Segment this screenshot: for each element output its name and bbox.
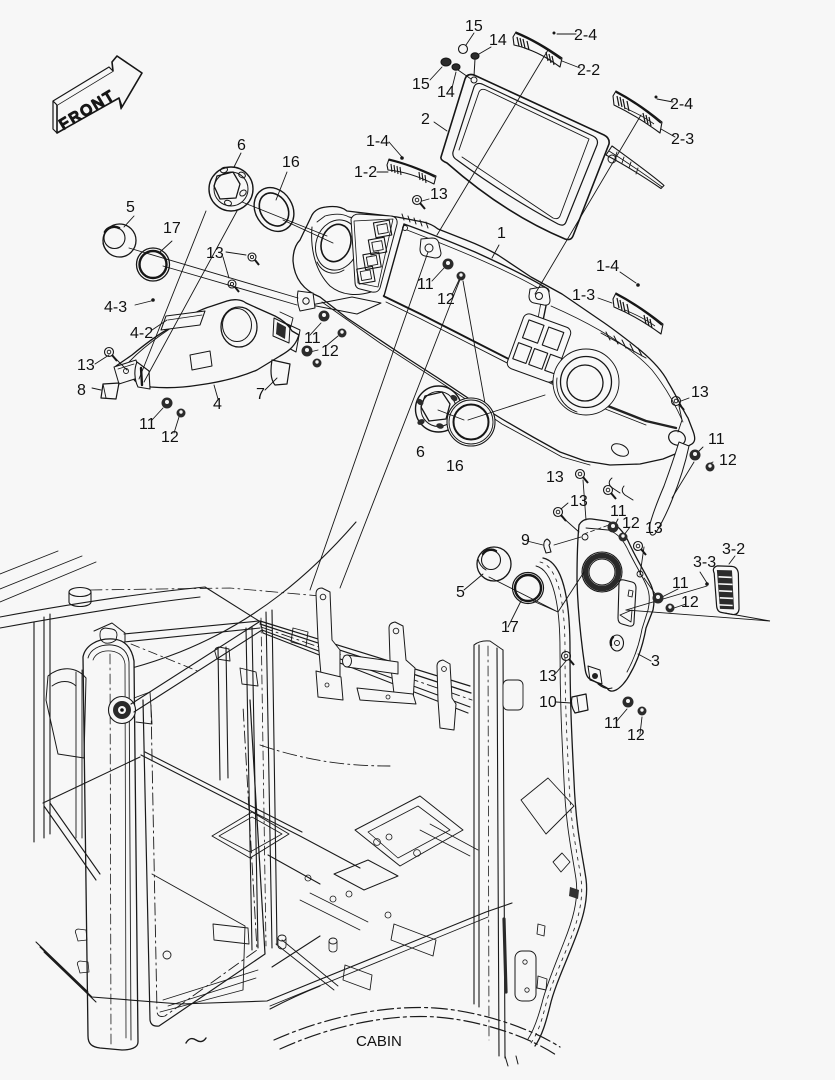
svg-text:8: 8 <box>77 382 86 399</box>
svg-text:11: 11 <box>604 715 621 732</box>
svg-text:11: 11 <box>139 416 156 433</box>
svg-text:2-4: 2-4 <box>670 96 693 113</box>
svg-text:11: 11 <box>304 330 321 347</box>
svg-text:17: 17 <box>163 220 181 237</box>
svg-text:14: 14 <box>489 32 507 49</box>
svg-text:5: 5 <box>126 199 135 216</box>
svg-text:12: 12 <box>622 515 640 532</box>
svg-text:1-4: 1-4 <box>366 133 389 150</box>
svg-text:1-2: 1-2 <box>354 164 377 181</box>
svg-text:13: 13 <box>645 520 663 537</box>
svg-text:11: 11 <box>672 575 689 592</box>
svg-text:17: 17 <box>501 619 519 636</box>
svg-text:11: 11 <box>708 431 725 448</box>
svg-text:13: 13 <box>539 668 557 685</box>
svg-text:13: 13 <box>430 186 448 203</box>
svg-text:7: 7 <box>256 386 265 403</box>
svg-text:2: 2 <box>421 111 430 128</box>
svg-text:13: 13 <box>570 493 588 510</box>
svg-text:3: 3 <box>651 653 660 670</box>
svg-text:12: 12 <box>627 727 645 744</box>
svg-text:2-4: 2-4 <box>574 27 597 44</box>
svg-text:4: 4 <box>213 396 222 413</box>
svg-text:1-4: 1-4 <box>596 258 619 275</box>
svg-text:12: 12 <box>321 343 339 360</box>
svg-text:12: 12 <box>681 594 699 611</box>
svg-text:12: 12 <box>719 452 737 469</box>
svg-text:10: 10 <box>539 694 557 711</box>
svg-text:15: 15 <box>412 76 430 93</box>
svg-text:13: 13 <box>77 357 95 374</box>
svg-text:6: 6 <box>237 137 246 154</box>
svg-text:6: 6 <box>416 444 425 461</box>
svg-text:13: 13 <box>691 384 709 401</box>
svg-text:11: 11 <box>417 276 434 293</box>
svg-text:13: 13 <box>546 469 564 486</box>
svg-text:16: 16 <box>282 154 300 171</box>
svg-text:3-3: 3-3 <box>693 554 716 571</box>
svg-text:CABIN: CABIN <box>356 1033 402 1050</box>
svg-text:1: 1 <box>497 225 506 242</box>
svg-text:2-2: 2-2 <box>577 62 600 79</box>
svg-text:16: 16 <box>446 458 464 475</box>
svg-text:12: 12 <box>437 291 455 308</box>
svg-text:13: 13 <box>206 245 224 262</box>
svg-text:3-2: 3-2 <box>722 541 745 558</box>
svg-text:4-2: 4-2 <box>130 325 153 342</box>
svg-text:2-3: 2-3 <box>671 131 694 148</box>
svg-text:15: 15 <box>465 18 483 35</box>
svg-text:9: 9 <box>521 532 530 549</box>
svg-text:12: 12 <box>161 429 179 446</box>
svg-text:5: 5 <box>456 584 465 601</box>
svg-text:1-3: 1-3 <box>572 287 595 304</box>
svg-text:14: 14 <box>437 84 455 101</box>
svg-text:4-3: 4-3 <box>104 299 127 316</box>
